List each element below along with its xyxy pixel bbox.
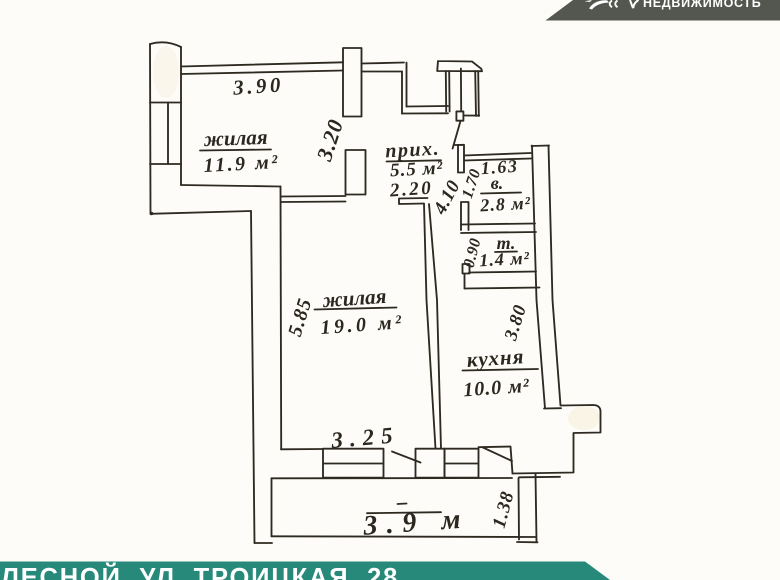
svg-text:жилая: жилая (321, 284, 387, 312)
svg-text:10.0 м²: 10.0 м² (463, 375, 531, 402)
svg-text:в.: в. (491, 173, 504, 193)
svg-text:жилая: жилая (202, 125, 268, 151)
svg-text:1.4 м²: 1.4 м² (479, 248, 531, 271)
svg-text:ЛЕСНОЙ, УЛ. ТРОИЦКАЯ, 28: ЛЕСНОЙ, УЛ. ТРОИЦКАЯ, 28 (1, 562, 399, 580)
svg-text:11.9 м²: 11.9 м² (203, 151, 280, 177)
svg-text:2.8 м²: 2.8 м² (479, 193, 532, 216)
svg-text:3.90: 3.90 (231, 72, 284, 100)
svg-text:кухня: кухня (466, 344, 525, 372)
svg-text:НЕДВИЖИМОСТЬ: НЕДВИЖИМОСТЬ (643, 0, 761, 10)
svg-text:2.20: 2.20 (388, 178, 434, 202)
